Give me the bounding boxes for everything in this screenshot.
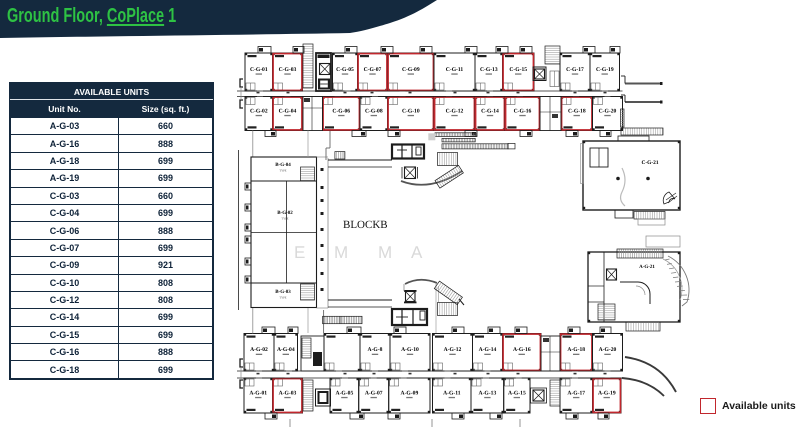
svg-text:TYPE: TYPE	[282, 218, 289, 221]
svg-text:EMMA: EMMA	[294, 243, 423, 262]
svg-text:TYPE: TYPE	[280, 170, 287, 173]
svg-text:B-G-03: B-G-03	[275, 289, 291, 295]
svg-text:A-G-09: A-G-09	[401, 390, 419, 396]
svg-text:C-G-05: C-G-05	[336, 67, 354, 73]
svg-text:A-G-18: A-G-18	[567, 347, 585, 353]
svg-text:C-G-21: C-G-21	[641, 160, 658, 166]
svg-text:A-G-14: A-G-14	[479, 347, 497, 353]
svg-text:A-G-10: A-G-10	[401, 347, 419, 353]
svg-text:C-G-14: C-G-14	[481, 108, 499, 114]
svg-text:C-G-02: C-G-02	[250, 108, 268, 114]
svg-text:C-G-13: C-G-13	[480, 67, 498, 73]
svg-text:C-G-17: C-G-17	[566, 67, 584, 73]
svg-text:A-G-21: A-G-21	[639, 264, 655, 270]
svg-text:A-G-20: A-G-20	[599, 347, 617, 353]
svg-text:C-G-10: C-G-10	[402, 108, 420, 114]
svg-text:C-G-04: C-G-04	[279, 108, 297, 114]
svg-text:C-G-19: C-G-19	[596, 67, 614, 73]
svg-text:A-G-02: A-G-02	[250, 347, 268, 353]
svg-text:C-G-20: C-G-20	[599, 108, 617, 114]
svg-text:A-G-03: A-G-03	[279, 390, 297, 396]
svg-text:A-G-12: A-G-12	[444, 347, 462, 353]
svg-text:C-G-16: C-G-16	[514, 108, 532, 114]
svg-text:C-G-15: C-G-15	[509, 67, 527, 73]
svg-text:A-G-13: A-G-13	[479, 390, 497, 396]
svg-text:TYPE: TYPE	[280, 297, 287, 300]
svg-text:A-G-8: A-G-8	[368, 347, 383, 353]
svg-text:C-G-07: C-G-07	[364, 67, 382, 73]
svg-text:BLOCKB: BLOCKB	[343, 219, 388, 231]
svg-text:C-G-12: C-G-12	[446, 108, 464, 114]
svg-text:A-G-01: A-G-01	[249, 390, 267, 396]
svg-text:A-G-05: A-G-05	[336, 390, 354, 396]
svg-text:A-G-15: A-G-15	[508, 390, 526, 396]
svg-text:A-G-04: A-G-04	[277, 347, 295, 353]
svg-text:C-G-08: C-G-08	[365, 108, 383, 114]
svg-text:A-G-19: A-G-19	[598, 390, 616, 396]
svg-text:C-G-06: C-G-06	[332, 108, 350, 114]
svg-text:C-G-03: C-G-03	[279, 67, 297, 73]
svg-text:B-G-02: B-G-02	[277, 210, 293, 216]
svg-text:C-G-11: C-G-11	[446, 67, 464, 73]
svg-text:B-G-04: B-G-04	[275, 162, 291, 168]
svg-text:C-G-01: C-G-01	[250, 67, 268, 73]
svg-text:C-G-09: C-G-09	[402, 67, 420, 73]
svg-text:A-G-17: A-G-17	[567, 390, 585, 396]
svg-text:A-G-16: A-G-16	[513, 347, 531, 353]
svg-text:A-G-07: A-G-07	[365, 390, 383, 396]
svg-text:C-G-18: C-G-18	[568, 108, 586, 114]
svg-text:A-G-11: A-G-11	[443, 390, 461, 396]
